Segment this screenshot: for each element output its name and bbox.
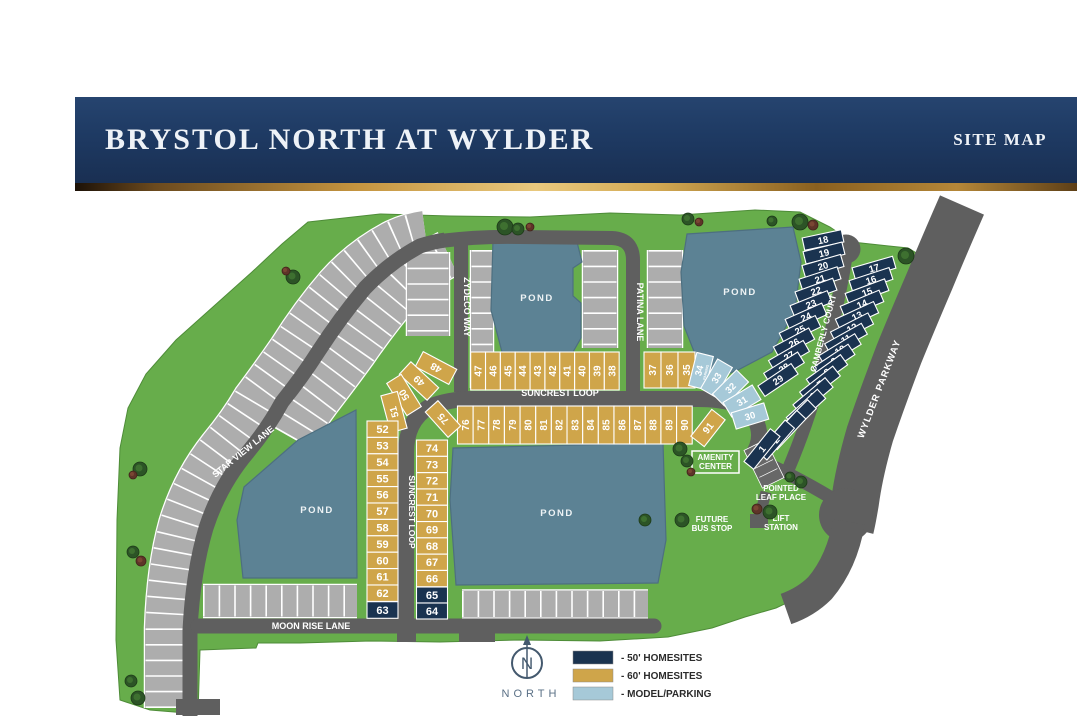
legend-swatch-60 [573,669,613,682]
svg-text:77: 77 [476,419,487,431]
lot-78: 78 [489,406,505,444]
svg-text:54: 54 [376,457,389,469]
svg-text:38: 38 [607,365,618,377]
lot-54: 54 [367,454,398,470]
svg-text:40: 40 [578,365,589,377]
lot-68: 68 [417,538,448,554]
tree-icon [785,472,795,482]
tree-icon [639,514,651,526]
pond-label: POND [723,287,756,298]
svg-text:87: 87 [633,419,644,431]
legend-label-model: - MODEL/PARKING [621,689,712,700]
header-bar: BRYSTOL NORTH AT WYLDER SITE MAP [75,97,1077,183]
lot-39: 39 [589,352,604,390]
legend-label-60: - 60' HOMESITES [621,671,703,682]
street-label-zydeco-way: ZYDECO WAY [462,277,472,337]
lot-85: 85 [598,406,614,444]
road-stub [397,628,416,642]
tree-icon [682,213,694,225]
lot-61: 61 [367,569,398,585]
svg-text:82: 82 [555,419,566,431]
site-map-label: SITE MAP [953,130,1047,150]
legend-swatch-50 [573,651,613,664]
lot-43: 43 [530,352,545,390]
tree-icon [763,505,777,519]
svg-text:52: 52 [376,424,388,436]
lot-74: 74 [417,440,448,456]
svg-text:56: 56 [376,490,388,502]
lot-89: 89 [661,406,677,444]
tree-icon [131,691,145,705]
north-compass-icon: N [512,635,542,678]
svg-text:37: 37 [648,364,659,376]
svg-text:90: 90 [680,419,691,431]
gold-divider [75,183,1077,191]
svg-text:39: 39 [592,365,603,377]
tree-icon [136,556,146,566]
svg-text:72: 72 [426,476,438,488]
svg-text:80: 80 [523,419,534,431]
svg-text:45: 45 [503,365,514,377]
lot-90: 90 [677,406,693,444]
svg-text:58: 58 [376,522,388,534]
lot-67: 67 [417,554,448,570]
svg-text:42: 42 [548,365,559,377]
svg-text:76: 76 [461,419,472,431]
lot-55: 55 [367,470,398,486]
lot-37: 37 [644,352,661,388]
lot-36: 36 [661,352,678,388]
lot-44: 44 [515,352,530,390]
tree-icon [127,546,139,558]
tree-icon [795,476,807,488]
lot-83: 83 [567,406,583,444]
tree-icon [898,248,914,264]
lot-57: 57 [367,503,398,519]
lot-56: 56 [367,487,398,503]
lot-64: 64 [417,603,448,619]
future-bus-stop-label: FUTUREBUS STOP [692,515,733,533]
svg-text:55: 55 [376,473,388,485]
compass-n: N [521,654,533,673]
svg-text:70: 70 [426,508,438,520]
lot-77: 77 [473,406,489,444]
lot-65: 65 [417,587,448,603]
lot-81: 81 [536,406,552,444]
legend-item-model: - MODEL/PARKING [573,687,712,700]
legend: N NORTH - 50' HOMESITES - 60' HOMESITES … [502,635,712,700]
svg-text:67: 67 [426,557,438,569]
lot-88: 88 [645,406,661,444]
svg-text:43: 43 [533,365,544,377]
svg-text:78: 78 [492,419,503,431]
lot-84: 84 [583,406,599,444]
svg-text:64: 64 [426,606,439,618]
lot-38: 38 [604,352,619,390]
lot-42: 42 [545,352,560,390]
legend-item-50: - 50' HOMESITES [573,651,703,664]
svg-text:63: 63 [376,605,388,617]
lot-80: 80 [520,406,536,444]
svg-text:85: 85 [602,419,613,431]
tree-icon [512,223,524,235]
street-label-patina-lane: PATINA LANE [635,283,645,342]
tree-icon [125,675,137,687]
lot-47: 47 [471,352,486,390]
svg-text:59: 59 [376,539,388,551]
svg-text:47: 47 [474,365,485,377]
svg-text:84: 84 [586,419,597,431]
svg-text:89: 89 [664,419,675,431]
road-stub [459,631,495,642]
tree-icon [792,214,808,230]
tree-icon [695,218,703,226]
legend-swatch-model [573,687,613,700]
lot-62: 62 [367,585,398,601]
svg-text:69: 69 [426,525,438,537]
tree-icon [681,455,693,467]
lot-86: 86 [614,406,630,444]
svg-text:41: 41 [563,365,574,377]
svg-text:57: 57 [376,506,388,518]
amenity-center-label: AMENITYCENTER [698,453,735,471]
tree-icon [687,468,695,476]
legend-label-50: - 50' HOMESITES [621,653,703,664]
lot-66: 66 [417,570,448,586]
lot-71: 71 [417,489,448,505]
svg-text:79: 79 [508,419,519,431]
page-title: BRYSTOL NORTH AT WYLDER [105,123,594,157]
svg-text:83: 83 [570,419,581,431]
svg-text:73: 73 [426,459,438,471]
tree-icon [497,219,513,235]
svg-text:44: 44 [518,365,529,377]
legend-item-60: - 60' HOMESITES [573,669,703,682]
lot-59: 59 [367,536,398,552]
svg-text:88: 88 [649,419,660,431]
lot-46: 46 [486,352,501,390]
pond-label: POND [540,508,573,519]
lot-79: 79 [504,406,520,444]
lot-40: 40 [575,352,590,390]
svg-text:53: 53 [376,440,388,452]
lot-53: 53 [367,437,398,453]
tree-icon [282,267,290,275]
lot-69: 69 [417,522,448,538]
lot-60: 60 [367,552,398,568]
svg-text:62: 62 [376,588,388,600]
lot-45: 45 [500,352,515,390]
lot-63: 63 [367,602,398,619]
tree-icon [675,513,689,527]
tree-icon [129,471,137,479]
svg-text:71: 71 [426,492,438,504]
lot-72: 72 [417,473,448,489]
tree-icon [526,223,534,231]
lot-87: 87 [630,406,646,444]
lot-70: 70 [417,505,448,521]
tree-icon [808,220,818,230]
pond-label: POND [520,293,553,304]
tree-icon [767,216,777,226]
svg-text:46: 46 [488,365,499,377]
street-label-moon-rise-lane: MOON RISE LANE [272,621,351,631]
svg-text:60: 60 [376,555,388,567]
tree-icon [673,442,687,456]
svg-text:61: 61 [376,572,388,584]
north-label: NORTH [502,688,561,700]
site-map-page: POND POND POND POND [0,0,1079,725]
road-stub [176,699,220,715]
svg-text:81: 81 [539,419,550,431]
lot-41: 41 [560,352,575,390]
svg-text:74: 74 [426,443,439,455]
svg-text:86: 86 [617,419,628,431]
lot-58: 58 [367,519,398,535]
svg-text:36: 36 [665,364,676,376]
lot-82: 82 [551,406,567,444]
pond-label: POND [300,505,333,516]
svg-text:68: 68 [426,541,438,553]
street-label-suncrest-loop-top: SUNCREST LOOP [521,388,599,398]
lot-73: 73 [417,456,448,472]
street-label-suncrest-loop-west: SUNCREST LOOP [407,475,417,549]
svg-text:65: 65 [426,590,438,602]
lot-52: 52 [367,421,398,437]
tree-icon [752,504,762,514]
svg-text:66: 66 [426,573,438,585]
